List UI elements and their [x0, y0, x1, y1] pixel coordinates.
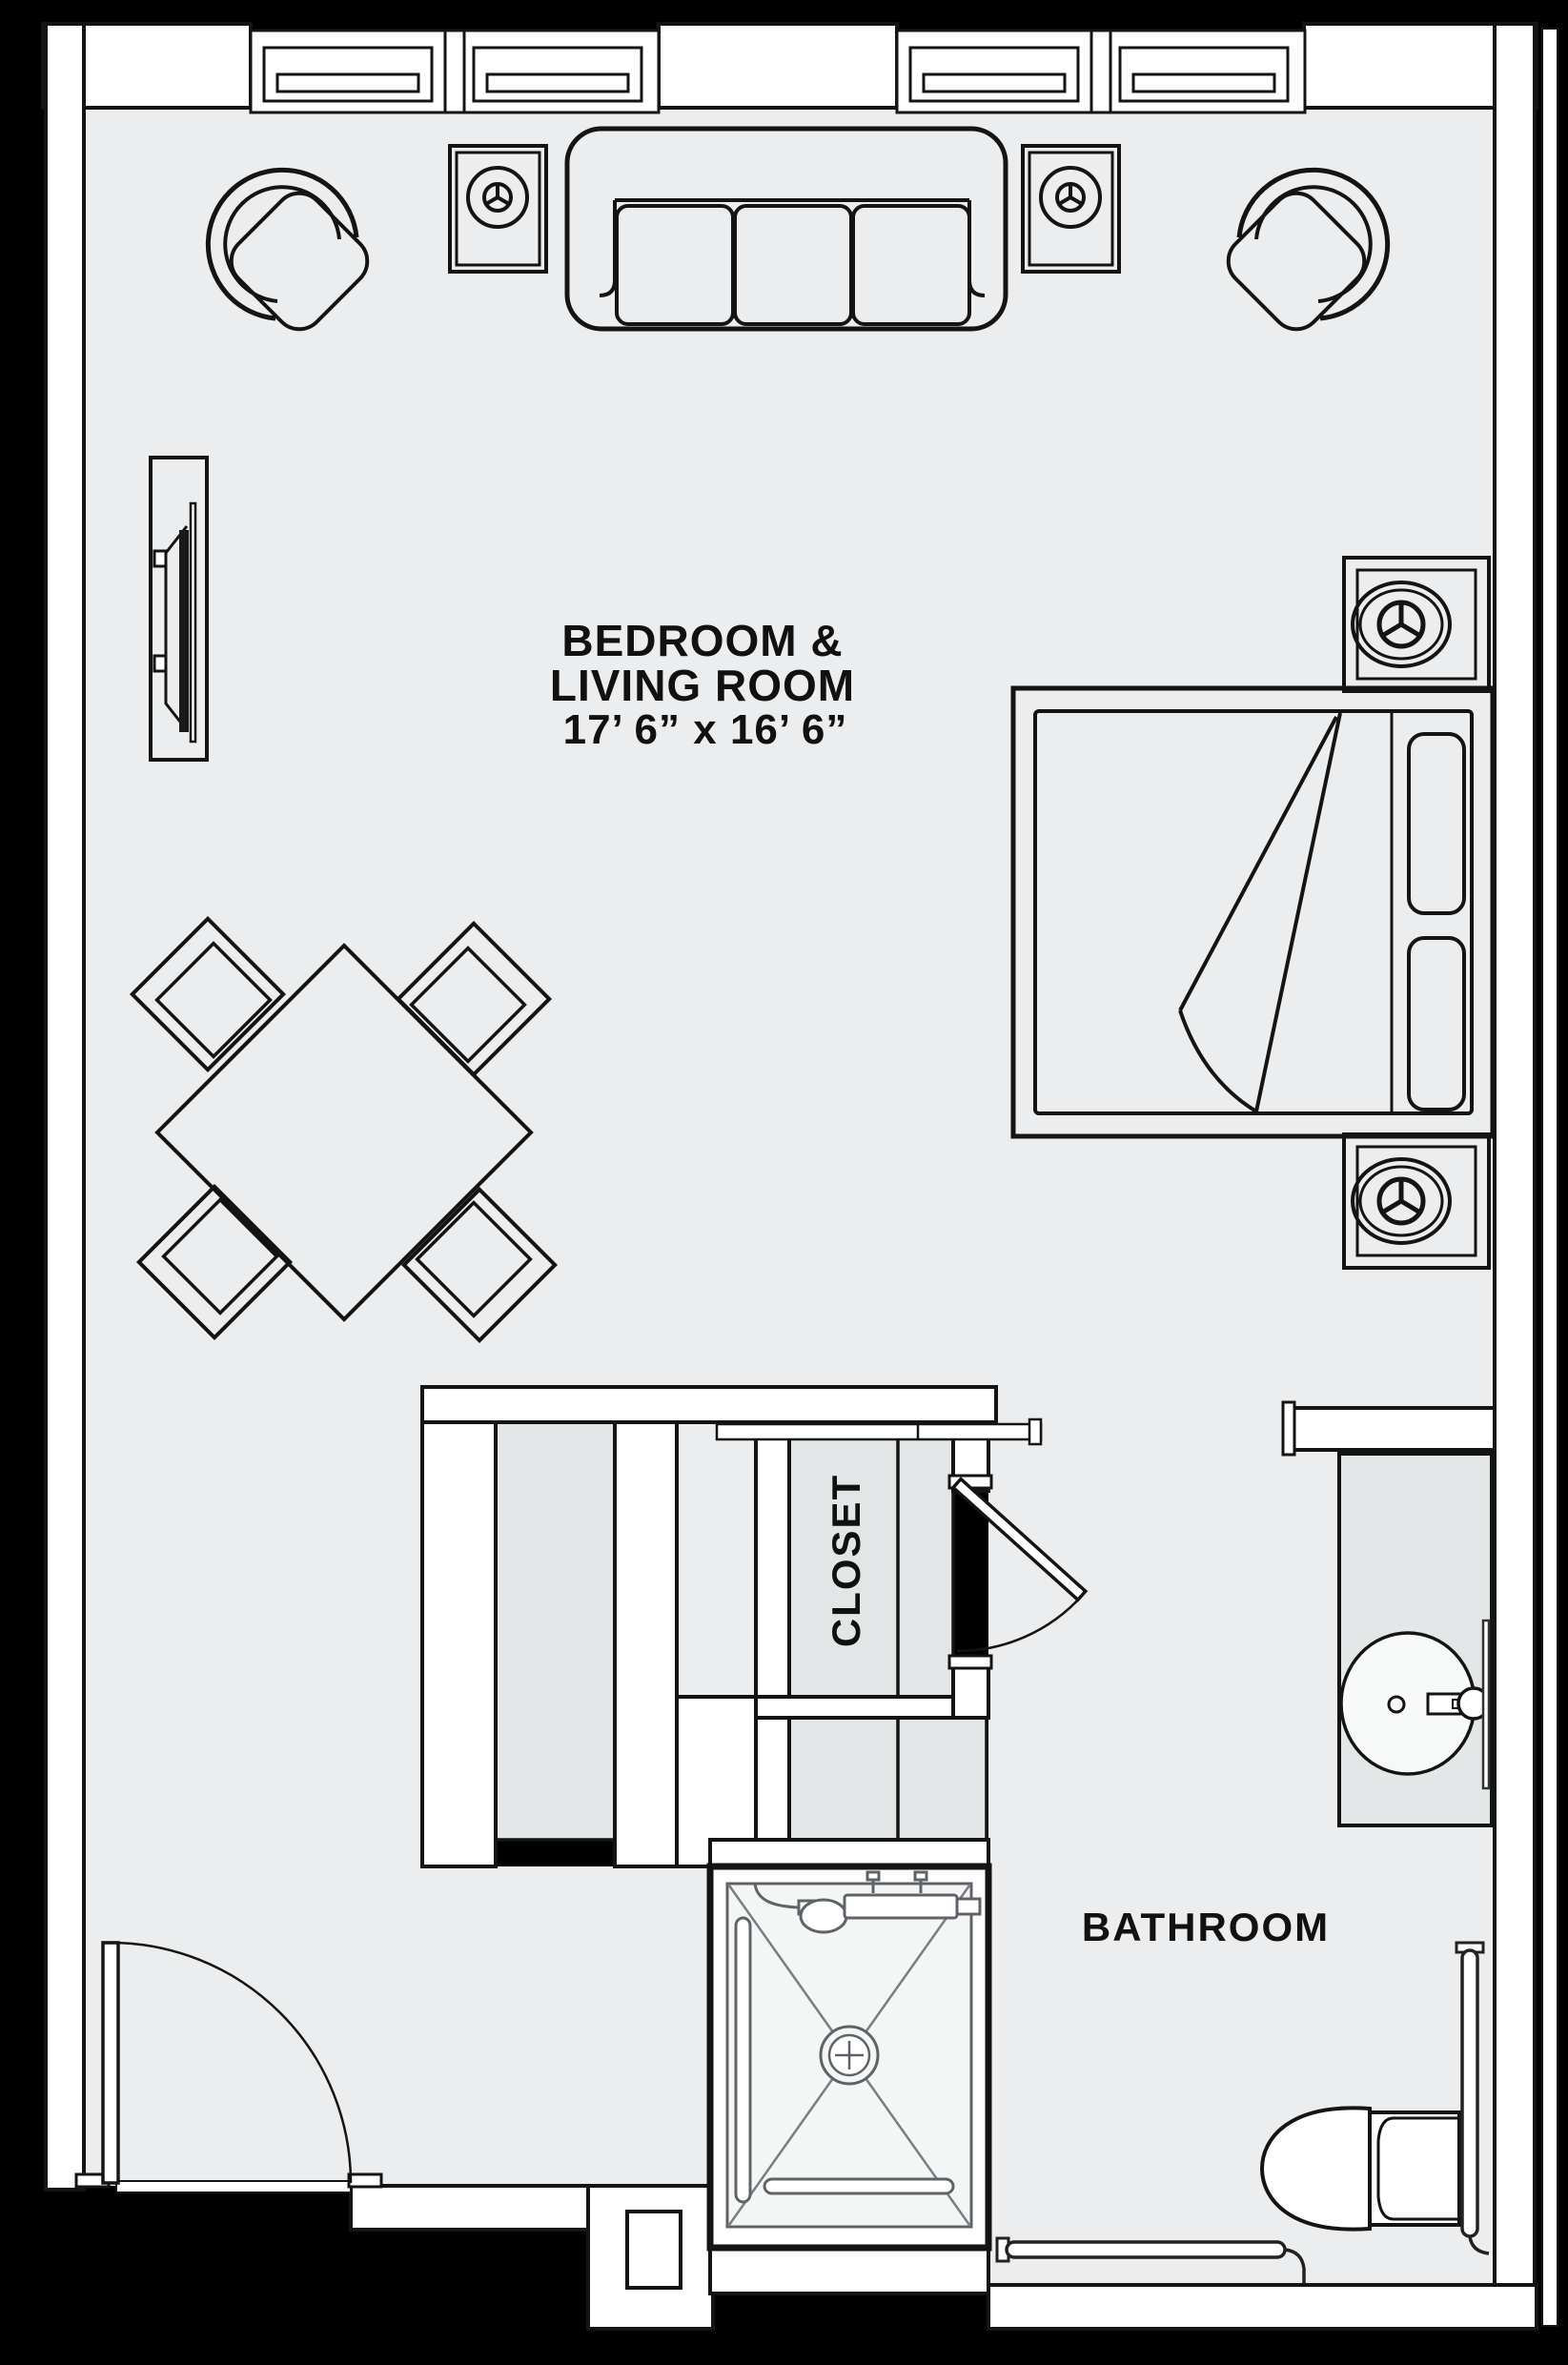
- closet-side-floor: [677, 1422, 756, 1697]
- chase-right-wall: [615, 1422, 677, 1866]
- window-mullion: [445, 31, 464, 112]
- window-glazing-icon: [1133, 74, 1274, 92]
- bottom-wall-entry: [351, 2186, 588, 2230]
- shower-valve: [867, 1872, 879, 1880]
- door-leaf: [103, 1943, 118, 2183]
- closet-label: CLOSET: [824, 1474, 868, 1647]
- main-room-label-line1: BEDROOM &: [561, 616, 843, 665]
- bottom-wall-shower: [710, 2248, 988, 2294]
- bathroom-top-wall: [1290, 1408, 1495, 1450]
- shower-top-wall: [710, 1840, 988, 1866]
- window-glazing-icon: [487, 74, 628, 92]
- top-wall-middle: [659, 24, 897, 108]
- grab-bar-icon: [764, 2179, 953, 2193]
- plumbing-chase: [496, 1422, 615, 1840]
- closet-interior: [789, 1422, 953, 1697]
- toilet-tank: [1370, 2112, 1459, 2225]
- main-room-label-line2: LIVING ROOM: [550, 661, 855, 710]
- bedroom-floor: [84, 103, 1495, 1408]
- toilet: [1262, 2108, 1459, 2229]
- right-wall-outer-trim: [1542, 29, 1558, 2326]
- closet-left-wall: [756, 1422, 789, 1718]
- door-jamb: [949, 1656, 991, 1668]
- door-jamb: [349, 2174, 381, 2187]
- shower-head-icon: [801, 1900, 846, 1932]
- vanity: [1339, 1454, 1492, 1825]
- grab-bar-icon: [1462, 1950, 1477, 2236]
- shower-control-bar: [845, 1895, 957, 1918]
- main-room-dimensions: 17’ 6” x 16’ 6”: [563, 706, 848, 753]
- closet-shelf: [717, 1419, 1041, 1444]
- closet-shelf-icon: [717, 1424, 1041, 1439]
- window-bay-left: [251, 31, 659, 112]
- closet-top-wall: [422, 1387, 996, 1422]
- shelf-bracket: [1029, 1419, 1041, 1444]
- entry-floor: [422, 1866, 710, 2186]
- grab-bar-icon: [1007, 2242, 1285, 2257]
- tv-screen-icon: [179, 530, 189, 732]
- floor-plan-drawing: BEDROOM & LIVING ROOM 17’ 6” x 16’ 6” CL…: [0, 0, 1568, 2365]
- tv-panel-edge: [191, 503, 195, 742]
- bathroom-label: BATHROOM: [1082, 1905, 1330, 1949]
- lower-closet-interior: [789, 1718, 987, 1840]
- wall-chase-box: [627, 2212, 681, 2288]
- tv-mount-arm: [154, 656, 166, 671]
- window-bay-right: [897, 31, 1305, 112]
- tv-mount-arm: [154, 551, 166, 566]
- shower-valve: [915, 1872, 927, 1880]
- shower-handle: [957, 1899, 980, 1914]
- bedroom-floor-lower-left: [84, 1387, 422, 2186]
- chase-left-wall: [422, 1422, 496, 1866]
- bathroom-door-jamb: [1283, 1402, 1294, 1455]
- shower: [710, 1866, 988, 2248]
- window-glazing-icon: [924, 74, 1065, 92]
- door-threshold: [116, 2181, 351, 2192]
- window-mullion: [1091, 31, 1110, 112]
- window-glazing-icon: [277, 74, 418, 92]
- floor-plan-canvas: BEDROOM & LIVING ROOM 17’ 6” x 16’ 6” CL…: [0, 0, 1568, 2365]
- right-wall: [1495, 24, 1535, 2329]
- grab-bar-icon: [736, 1918, 750, 2202]
- mirror-icon: [1483, 1621, 1489, 1788]
- lower-closet-left-wall: [756, 1718, 789, 1840]
- left-wall: [46, 24, 84, 2190]
- bottom-wall-bathroom: [988, 2285, 1537, 2329]
